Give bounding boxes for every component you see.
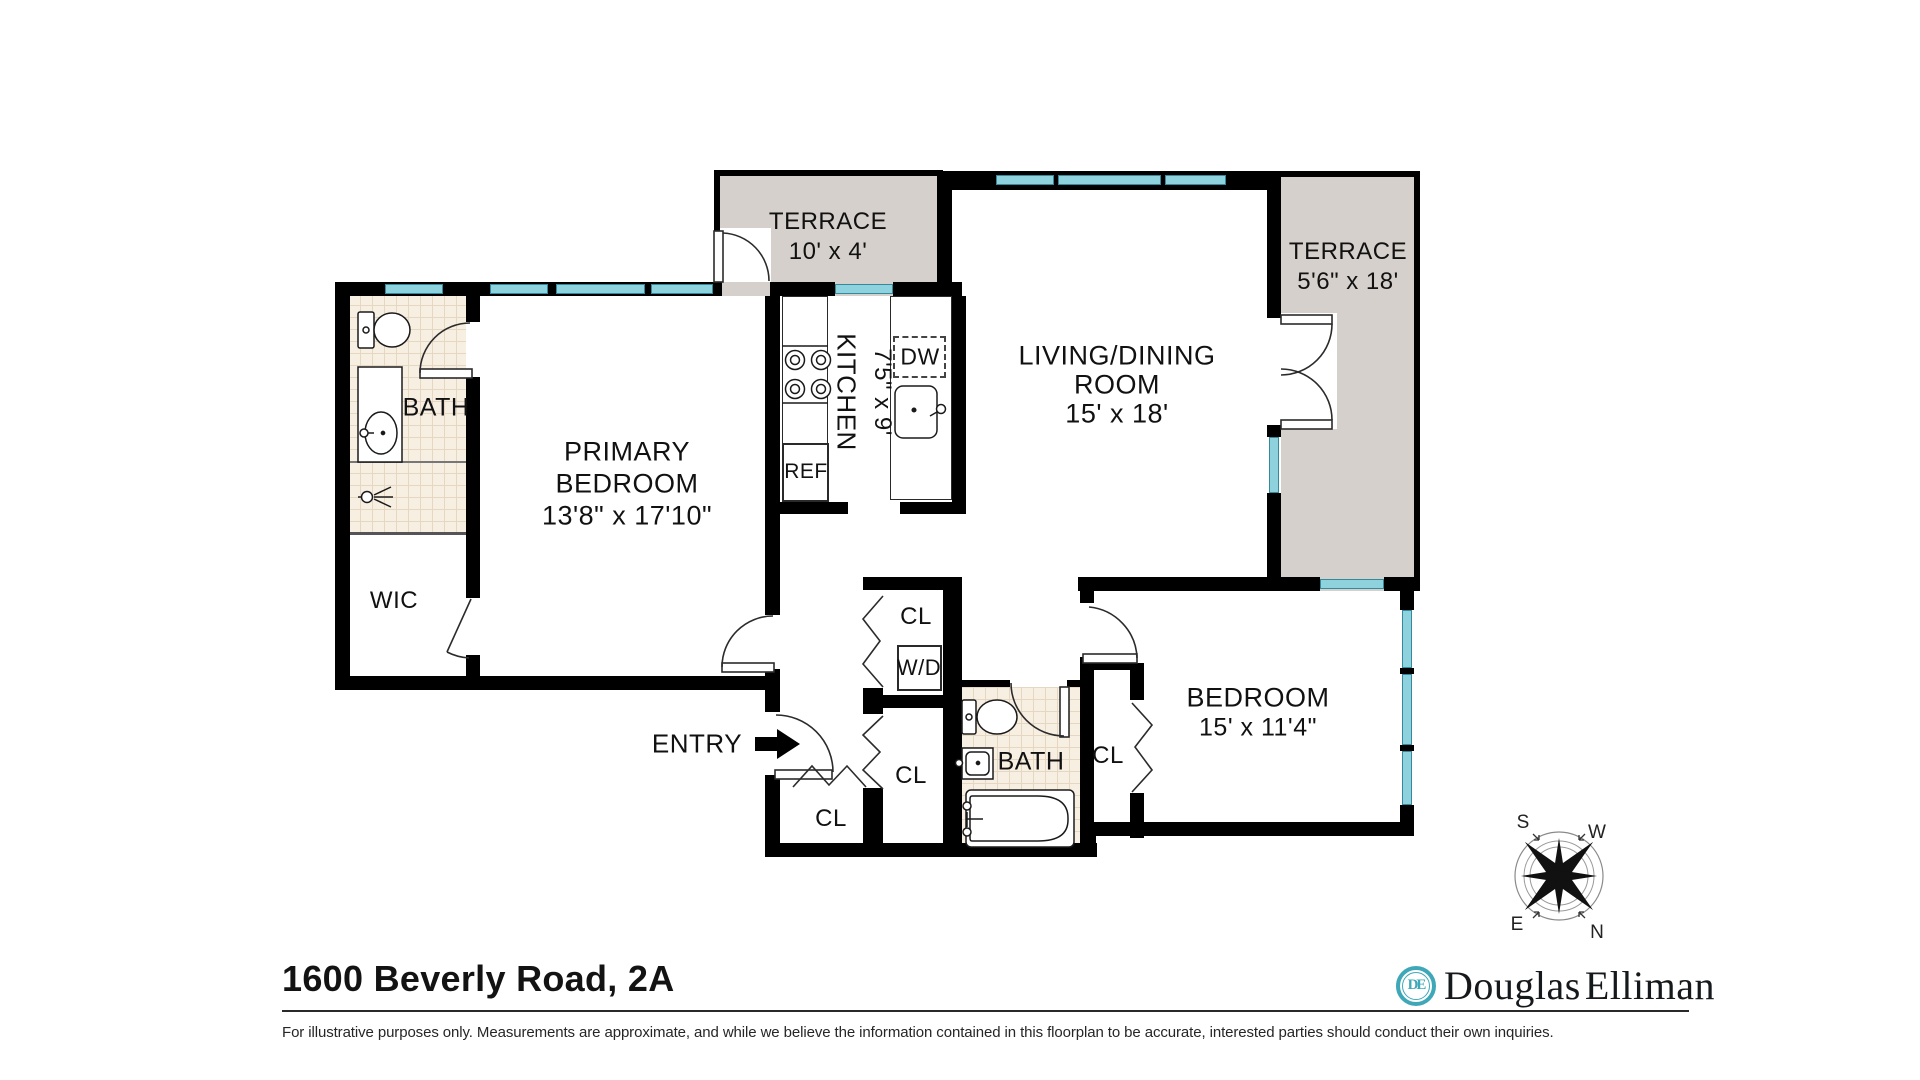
washer-dryer-label: W/D xyxy=(897,655,941,681)
primary-bedroom-dims: 13'8" x 17'10" xyxy=(542,501,712,532)
terrace-right-label: TERRACE xyxy=(1289,238,1407,266)
primary-bedroom-label-1: PRIMARY xyxy=(564,437,690,468)
wic-label: WIC xyxy=(370,587,418,615)
closet-bedroom-label: CL xyxy=(1092,742,1124,770)
compass-rose: S W E N xyxy=(1511,812,1606,943)
terrace-right-dims: 5'6" x 18' xyxy=(1297,268,1398,296)
floorplan-page: S W E N TERRACE 10' x 4' LIVING/DINING R… xyxy=(0,0,1920,1080)
bedroom-label: BEDROOM xyxy=(1186,683,1329,714)
brand-logo-icon: DE xyxy=(1396,966,1436,1006)
terrace-left-dims: 10' x 4' xyxy=(789,238,868,266)
compass-e: E xyxy=(1511,914,1524,935)
bedroom-dims: 15' x 11'4" xyxy=(1199,714,1317,743)
living-room-label-2: ROOM xyxy=(1074,370,1160,401)
entry-arrow xyxy=(755,729,800,759)
closet-top-label: CL xyxy=(900,603,932,631)
brand-wordmark: DouglasElliman xyxy=(1444,962,1715,1009)
living-room-dims: 15' x 18' xyxy=(1065,399,1168,430)
refrigerator-label: REF xyxy=(784,460,828,484)
closet-bottom-label: CL xyxy=(815,805,847,833)
compass-n: N xyxy=(1590,922,1604,943)
plan-linework: S W E N xyxy=(0,0,1920,1080)
primary-bath-label: BATH xyxy=(403,394,470,423)
kitchen-dims: 7'5" x 9' xyxy=(868,348,896,436)
dishwasher-label: DW xyxy=(900,344,939,371)
compass-s: S xyxy=(1517,812,1530,833)
brand-logo: DE DouglasElliman xyxy=(1396,962,1715,1009)
hall-bath-label: BATH xyxy=(998,748,1065,777)
brand-word-right: Elliman xyxy=(1585,963,1715,1008)
primary-bedroom-label-2: BEDROOM xyxy=(555,469,698,500)
brand-word-left: Douglas xyxy=(1444,963,1581,1008)
brand-monogram: DE xyxy=(1402,972,1430,1000)
entry-label: ENTRY xyxy=(652,729,742,760)
page-title: 1600 Beverly Road, 2A xyxy=(282,958,675,1000)
disclaimer-text: For illustrative purposes only. Measurem… xyxy=(282,1024,1702,1041)
terrace-left-label: TERRACE xyxy=(769,208,887,236)
kitchen-label: KITCHEN xyxy=(831,333,862,451)
compass-w: W xyxy=(1588,822,1606,843)
closet-mid-label: CL xyxy=(895,762,927,790)
living-room-label-1: LIVING/DINING xyxy=(1018,341,1215,372)
footer-rule xyxy=(282,1010,1689,1012)
